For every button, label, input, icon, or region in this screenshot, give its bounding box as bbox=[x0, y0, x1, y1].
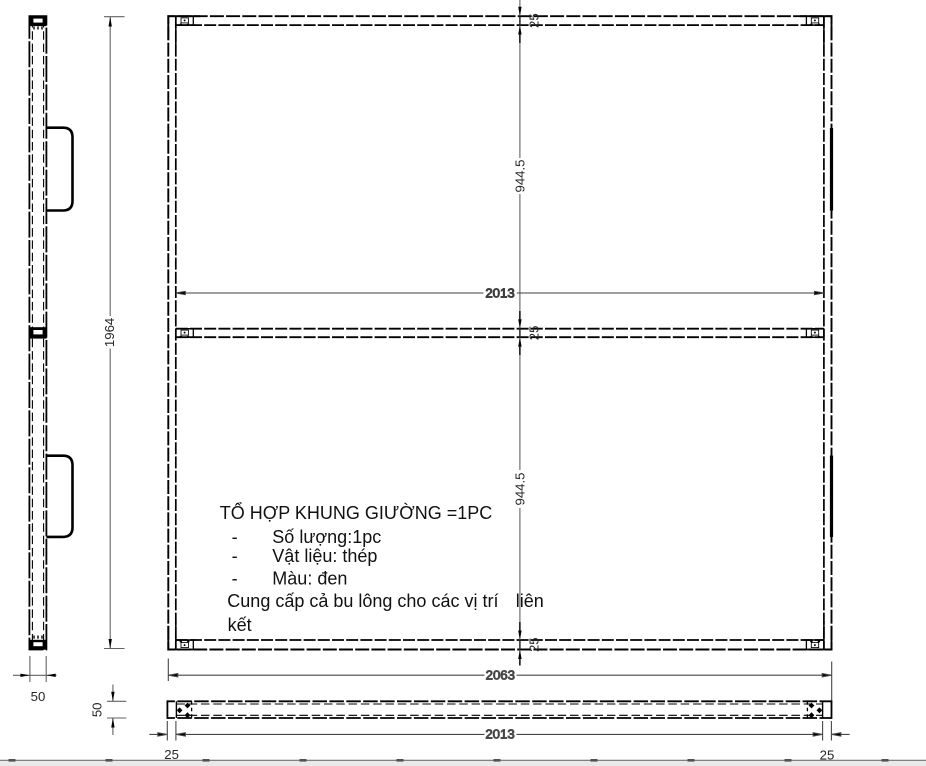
svg-text:25: 25 bbox=[526, 637, 541, 652]
svg-text:2063: 2063 bbox=[486, 668, 515, 683]
svg-text:Cung cấp cả bu lông cho các vị: Cung cấp cả bu lông cho các vị trí bbox=[227, 591, 498, 611]
svg-text:kết: kết bbox=[228, 615, 252, 635]
svg-text:Vật liệu: thép: Vật liệu: thép bbox=[272, 546, 377, 566]
svg-text:944.5: 944.5 bbox=[512, 159, 527, 192]
svg-text:944.5: 944.5 bbox=[512, 472, 527, 505]
svg-text:1964: 1964 bbox=[102, 318, 117, 347]
svg-text:-: - bbox=[232, 527, 238, 547]
svg-text:Màu: đen: Màu: đen bbox=[272, 569, 347, 589]
svg-text:50: 50 bbox=[31, 689, 46, 704]
svg-text:-: - bbox=[232, 546, 238, 566]
svg-text:2013: 2013 bbox=[485, 727, 514, 742]
svg-text:25: 25 bbox=[526, 13, 541, 28]
svg-text:-: - bbox=[232, 569, 238, 589]
svg-text:TỔ HỢP KHUNG GIƯỜNG =1PC: TỔ HỢP KHUNG GIƯỜNG =1PC bbox=[220, 502, 492, 523]
svg-text:liên: liên bbox=[516, 591, 544, 611]
svg-text:Số lượng:1pc: Số lượng:1pc bbox=[272, 527, 381, 547]
svg-text:50: 50 bbox=[89, 702, 104, 717]
svg-text:2013: 2013 bbox=[485, 286, 514, 301]
svg-text:25: 25 bbox=[526, 326, 541, 341]
